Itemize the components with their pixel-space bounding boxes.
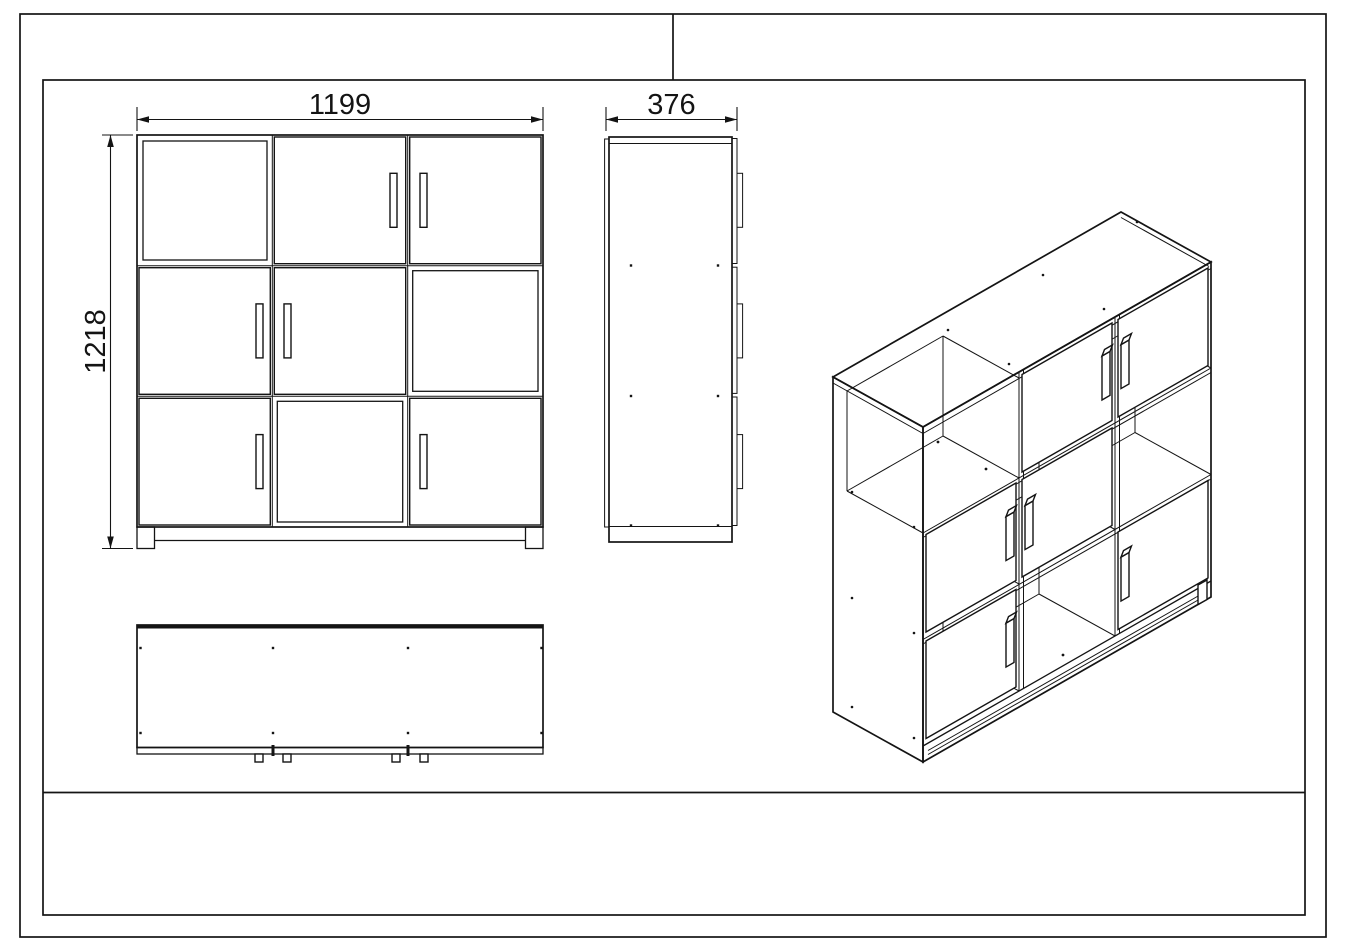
door-handle xyxy=(284,304,291,358)
front-open-compartment-bottom-middle xyxy=(277,401,402,522)
isometric-view xyxy=(833,212,1211,762)
side-depth-dimension: 376 xyxy=(606,89,737,131)
door-handle-profile xyxy=(737,304,743,358)
front-plinth xyxy=(137,527,543,549)
door-handle-profile xyxy=(737,173,743,227)
front-width-dimension: 1199 xyxy=(137,89,543,131)
front-view: 1199 1218 xyxy=(80,89,543,549)
foot-glide xyxy=(420,754,428,762)
door-handle xyxy=(420,435,427,489)
front-doors xyxy=(139,137,541,525)
door-handle xyxy=(390,173,397,227)
foot-glide xyxy=(392,754,400,762)
drawing-sheet: 1199 1218 xyxy=(0,0,1346,951)
door-handle-profile xyxy=(737,435,743,489)
side-view: 376 xyxy=(605,89,743,542)
front-height-dimension: 1218 xyxy=(80,135,133,549)
bottom-view xyxy=(137,625,543,762)
technical-drawing: 1199 1218 xyxy=(0,0,1346,951)
iso-foot xyxy=(1198,580,1207,605)
door-handle xyxy=(256,435,263,489)
front-open-compartment-top-left xyxy=(143,141,267,260)
side-body xyxy=(605,137,743,542)
door-handle xyxy=(256,304,263,358)
door-handle xyxy=(420,173,427,227)
front-width-label: 1199 xyxy=(309,89,371,121)
front-height-label: 1218 xyxy=(80,309,112,374)
foot-glide xyxy=(283,754,291,762)
foot-glide xyxy=(255,754,263,762)
iso-doors xyxy=(926,268,1208,739)
side-depth-label: 376 xyxy=(647,89,695,121)
front-open-compartment-middle-right xyxy=(413,271,538,392)
